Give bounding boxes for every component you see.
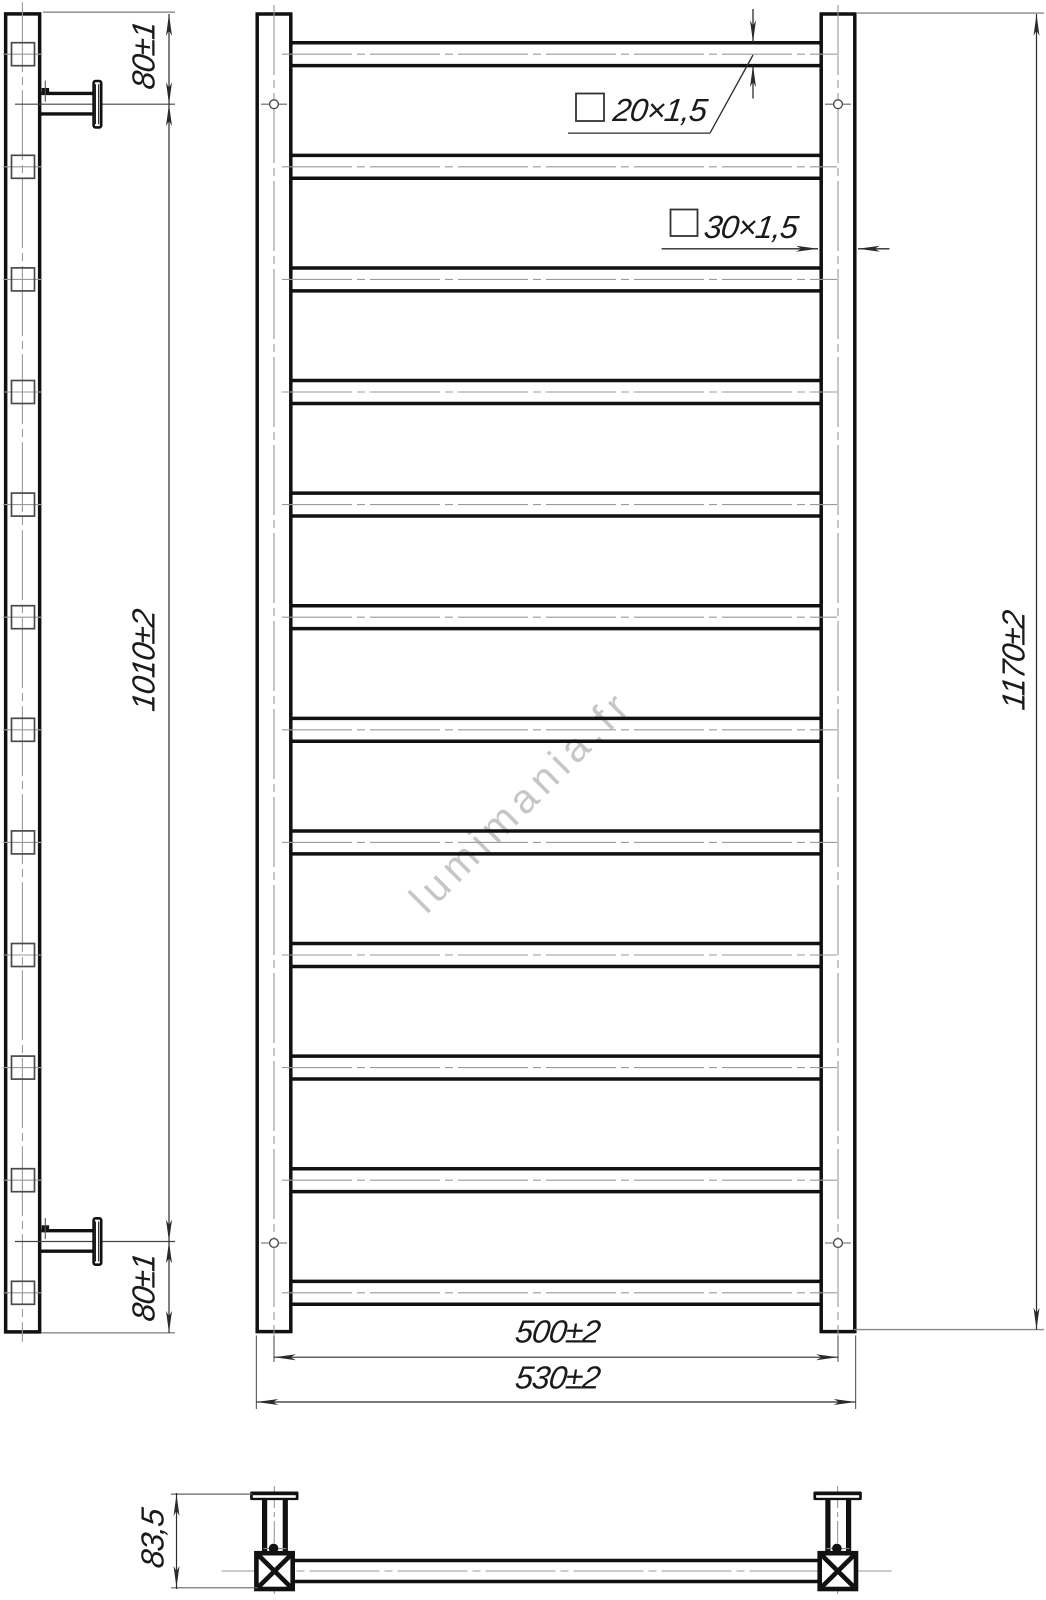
svg-text:1010±2: 1010±2 xyxy=(126,606,162,713)
svg-text:20×1,5: 20×1,5 xyxy=(610,92,710,128)
svg-text:500±2: 500±2 xyxy=(513,1314,603,1350)
svg-text:30×1,5: 30×1,5 xyxy=(702,209,801,245)
svg-text:83,5: 83,5 xyxy=(135,1506,171,1571)
svg-text:lumimania.fr: lumimania.fr xyxy=(400,680,641,921)
svg-text:80±1: 80±1 xyxy=(126,1251,162,1323)
svg-text:530±2: 530±2 xyxy=(513,1360,603,1396)
svg-text:80±1: 80±1 xyxy=(126,19,162,91)
svg-text:1170±2: 1170±2 xyxy=(996,608,1032,712)
